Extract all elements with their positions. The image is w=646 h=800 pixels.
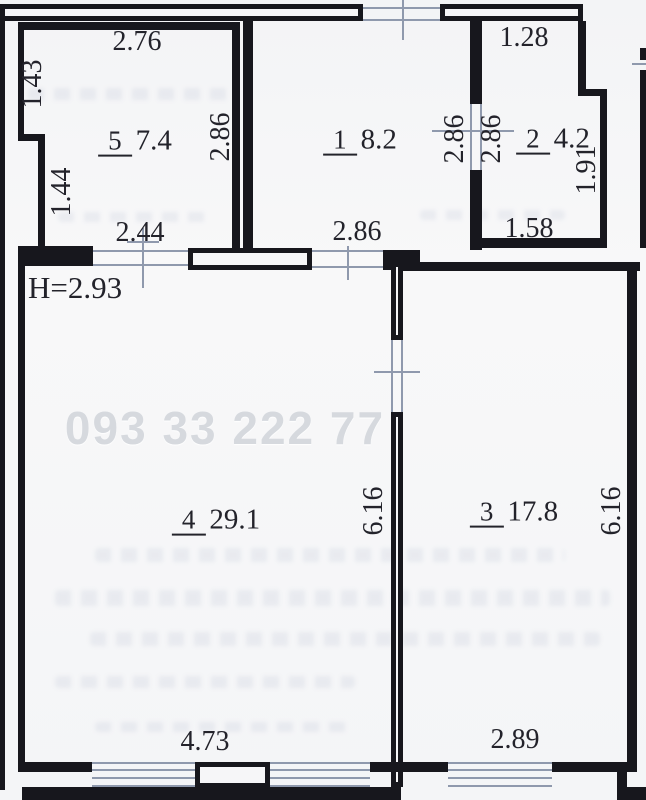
scan-artifact xyxy=(55,590,610,606)
dim-room2-bottom: 1.58 xyxy=(505,213,554,245)
wall-right-outer xyxy=(640,70,646,248)
room-2-number: 2 xyxy=(516,125,550,155)
wall-divider-upper xyxy=(391,262,403,340)
wall-room1-right-lower xyxy=(470,170,482,250)
wall-room3-right xyxy=(627,262,637,772)
room-1-label: 1 8.2 xyxy=(323,123,397,158)
room-3-number: 3 xyxy=(470,498,504,528)
scan-artifact xyxy=(28,88,233,100)
dim-leader-divider-opening xyxy=(374,371,420,373)
wall-room1-left xyxy=(243,20,253,250)
dim-room4-right: 6.16 xyxy=(358,487,390,536)
room-4-area: 29.1 xyxy=(209,504,260,536)
wall-left-outer xyxy=(0,20,5,790)
dim-line-top-opening-a xyxy=(363,7,440,9)
wall-room5-left-lower xyxy=(38,134,45,252)
wall-top-outer-left xyxy=(0,4,363,21)
room-1-number: 1 xyxy=(323,126,357,156)
dim-room5-left-upper: 1.43 xyxy=(17,60,49,109)
ceiling-height-note: H=2.93 xyxy=(28,270,122,306)
dim-door12-left: 2.86 xyxy=(439,115,471,164)
dim-room2-top: 1.28 xyxy=(500,22,549,54)
dim-room1-bottom: 2.86 xyxy=(333,216,382,248)
room-3-label: 3 17.8 xyxy=(470,495,558,530)
scan-artifact xyxy=(55,676,355,688)
window-room3 xyxy=(448,762,552,787)
wall-band-under-room5 xyxy=(18,246,93,266)
dim-room3-right: 6.16 xyxy=(596,487,628,536)
wall-right-outer-upper xyxy=(640,48,646,60)
dim-room3-bottom: 2.89 xyxy=(491,724,540,756)
dim-leader-room1-door xyxy=(347,246,349,280)
floor-plan: 093 33 222 77 2 xyxy=(0,0,646,800)
wall-room3-bottom-right xyxy=(552,762,637,772)
wall-divider-lower xyxy=(391,412,403,787)
dim-door12-right: 2.86 xyxy=(476,115,508,164)
wall-room3-corner-step xyxy=(617,772,627,788)
wall-room4-bottom-right xyxy=(370,762,401,772)
room-2-area: 4.2 xyxy=(554,123,590,155)
room-1-area: 8.2 xyxy=(361,124,397,156)
wall-bottom-outer-left xyxy=(22,787,401,800)
wall-room1-right-upper xyxy=(470,20,482,104)
room-4-number: 4 xyxy=(172,506,206,536)
dim-room5-door: 2.44 xyxy=(116,217,165,249)
watermark-phone: 093 33 222 77 xyxy=(65,401,385,455)
door-room5-threshold xyxy=(93,250,188,266)
window-room4-pier-block xyxy=(195,762,270,788)
room-3-area: 17.8 xyxy=(507,496,558,528)
dim-tick-right-wall xyxy=(632,63,646,65)
window-room4-right xyxy=(270,762,370,787)
window-room4-left xyxy=(92,762,195,787)
wall-room4-left xyxy=(18,266,25,762)
wall-room3-bottom-left xyxy=(403,762,448,772)
wall-bottom-outer-right xyxy=(617,787,646,800)
scan-artifact xyxy=(95,548,565,562)
wall-room3-top xyxy=(403,262,640,271)
dim-room5-right: 2.86 xyxy=(205,113,237,162)
room-2-label: 2 4.2 xyxy=(516,122,590,157)
wall-top-outer-right xyxy=(440,4,583,21)
scan-artifact xyxy=(90,632,600,646)
wall-room4-bottom-left xyxy=(18,762,92,772)
wall-band-center xyxy=(188,248,312,270)
dim-room5-top: 2.76 xyxy=(113,26,162,58)
room-4-label: 4 29.1 xyxy=(172,503,260,538)
room-5-area: 7.4 xyxy=(136,125,172,157)
room-5-label: 5 7.4 xyxy=(98,124,172,159)
door-room4-room3 xyxy=(391,340,403,412)
wall-room2-notch-vertical xyxy=(578,21,586,96)
room-5-number: 5 xyxy=(98,127,132,157)
dim-line-top-opening-b xyxy=(363,19,440,21)
dim-room5-left-lower: 1.44 xyxy=(46,168,78,217)
dim-room4-bottom: 4.73 xyxy=(181,726,230,758)
